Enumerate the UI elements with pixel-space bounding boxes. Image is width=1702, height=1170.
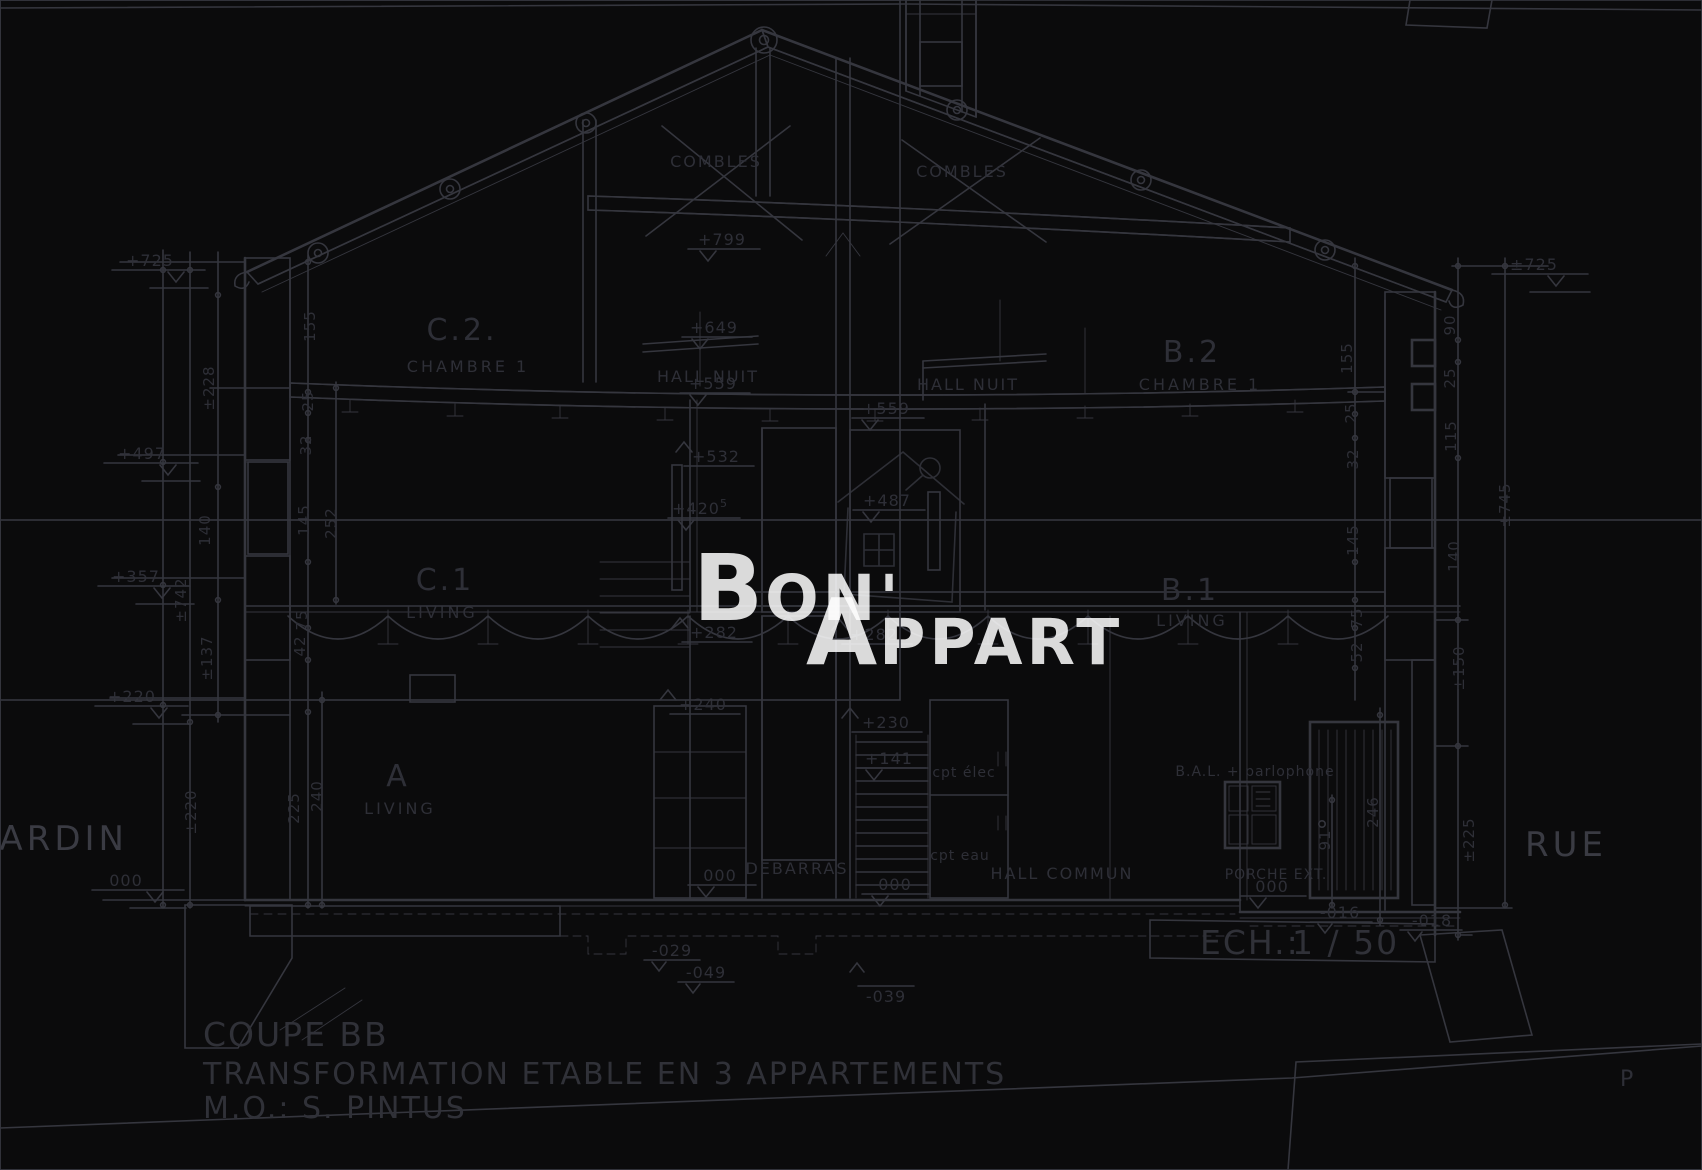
roof-structure	[235, 27, 1464, 310]
dim-32-left: 32	[297, 434, 315, 455]
elevation-220: +220	[108, 687, 156, 706]
level-141: +141	[865, 749, 913, 768]
label-cpt-eau: cpt eau	[930, 848, 990, 864]
level-559-left: +559	[689, 374, 737, 393]
architectural-section-drawing: COMBLES COMBLES C.2. CHAMBRE 1 B.2 CHAMB…	[0, 0, 1702, 1170]
scale-label: ECH.:	[1200, 923, 1300, 962]
dim-228: ±228	[200, 365, 218, 410]
dim-137: ±137	[198, 635, 216, 680]
level-000-porche: 000	[1255, 877, 1289, 896]
dim-745: ±745	[1496, 482, 1514, 527]
corner-mark: P	[1620, 1067, 1633, 1092]
room-label-b2: B.2	[1163, 335, 1221, 370]
dim-225-right: ±225	[1460, 817, 1478, 862]
room-label-hall-commun: HALL COMMUN	[991, 864, 1134, 883]
other-sheet-corner	[1406, 0, 1492, 28]
photo-of-blueprint: COMBLES COMBLES C.2. CHAMBRE 1 B.2 CHAMB…	[0, 0, 1702, 1170]
level-minus-049: -049	[686, 963, 726, 982]
dim-90: 90	[1441, 314, 1459, 335]
dim-25-left: 25	[299, 390, 317, 411]
level-000-stair: 000	[878, 875, 912, 894]
dim-91: 91	[1316, 829, 1334, 850]
room-label-b1: B.1	[1161, 573, 1219, 608]
level-minus-029: -029	[652, 941, 692, 960]
room-label-c2: C.2.	[426, 313, 497, 348]
dim-32-right: 32	[1344, 448, 1362, 469]
elevation-725-right: ±725	[1510, 255, 1558, 274]
dim-145-right: 145	[1344, 524, 1362, 556]
dim-252: 252	[322, 507, 340, 539]
level-minus-018: -018	[1412, 911, 1452, 930]
dim-742: ±742	[172, 577, 190, 622]
level-420: +4205	[672, 497, 728, 518]
dim-150: ±150	[1450, 645, 1468, 690]
dim-25-right: 25	[1342, 402, 1360, 423]
elevation-357: +357	[112, 567, 160, 586]
level-532: +532	[692, 447, 740, 466]
label-cpt-elec: cpt élec	[932, 765, 995, 781]
level-487: +487	[863, 491, 911, 510]
room-label-a: A	[386, 759, 410, 794]
elevation-497: +497	[118, 444, 166, 463]
dim-220: ±220	[182, 789, 200, 834]
level-000-a: 000	[703, 866, 737, 885]
dim-75-right: 75	[1348, 607, 1366, 628]
label-bal-parlophone: B.A.L. + parlophone	[1175, 764, 1334, 780]
room-label-combles-left: COMBLES	[670, 152, 762, 171]
site-label-jardin: JARDIN	[0, 819, 128, 859]
site-label-rue: RUE	[1525, 825, 1607, 865]
level-799: +799	[698, 230, 746, 249]
timber-posts	[583, 58, 860, 898]
level-559-right: +559	[862, 399, 910, 418]
chimney	[906, 0, 976, 117]
elevation-725-left: +725	[126, 251, 174, 270]
room-label-a-sub: LIVING	[364, 799, 436, 818]
watermark-word-appart: APPART	[806, 579, 1123, 686]
room-label-hall-nuit-right: HALL NUIT	[917, 375, 1019, 394]
dim-75-left: 75	[293, 609, 311, 630]
dim-240: 240	[308, 780, 326, 812]
dim-155-left: 155	[301, 310, 319, 342]
room-label-b1-sub: LIVING	[1156, 611, 1228, 630]
dim-140-right: 140	[1445, 540, 1463, 572]
scale-value: 1 / 50	[1292, 923, 1399, 962]
dim-115: 115	[1442, 420, 1460, 452]
dim-225: 225	[285, 792, 303, 824]
level-minus-016: -016	[1320, 903, 1360, 922]
gutter-left	[235, 272, 249, 288]
level-240: +240	[679, 695, 727, 714]
level-minus-039: -039	[866, 987, 906, 1006]
dim-140-left: 140	[196, 514, 214, 546]
room-label-b2-sub: CHAMBRE 1	[1139, 375, 1261, 394]
drawing-subtitle: TRANSFORMATION ETABLE EN 3 APPARTEMENTS	[202, 1057, 1006, 1092]
mailbox-intercom-panel	[1225, 782, 1280, 848]
dim-155-right: 155	[1338, 342, 1356, 374]
dim-42: 42	[291, 635, 309, 656]
room-label-c1: C.1	[416, 563, 475, 598]
room-label-combles-right: COMBLES	[916, 162, 1008, 181]
dim-25b-right: 25	[1441, 367, 1459, 388]
room-label-c1-sub: LIVING	[406, 603, 478, 622]
dim-246: 246	[1364, 796, 1382, 828]
room-label-debarras: DEBARRAS	[745, 859, 848, 878]
level-649: +649	[690, 318, 738, 337]
right-exterior-wall	[1385, 292, 1435, 935]
drawing-owner: M.O.: S. PINTUS	[203, 1091, 467, 1126]
room-label-c2-sub: CHAMBRE 1	[407, 357, 529, 376]
drawing-title: COUPE BB	[203, 1015, 389, 1054]
level-000-jardin: 000	[109, 871, 143, 890]
level-230: +230	[862, 713, 910, 732]
dim-52: 52	[1348, 641, 1366, 662]
watermark-logo: BON' APPART	[693, 452, 1123, 686]
